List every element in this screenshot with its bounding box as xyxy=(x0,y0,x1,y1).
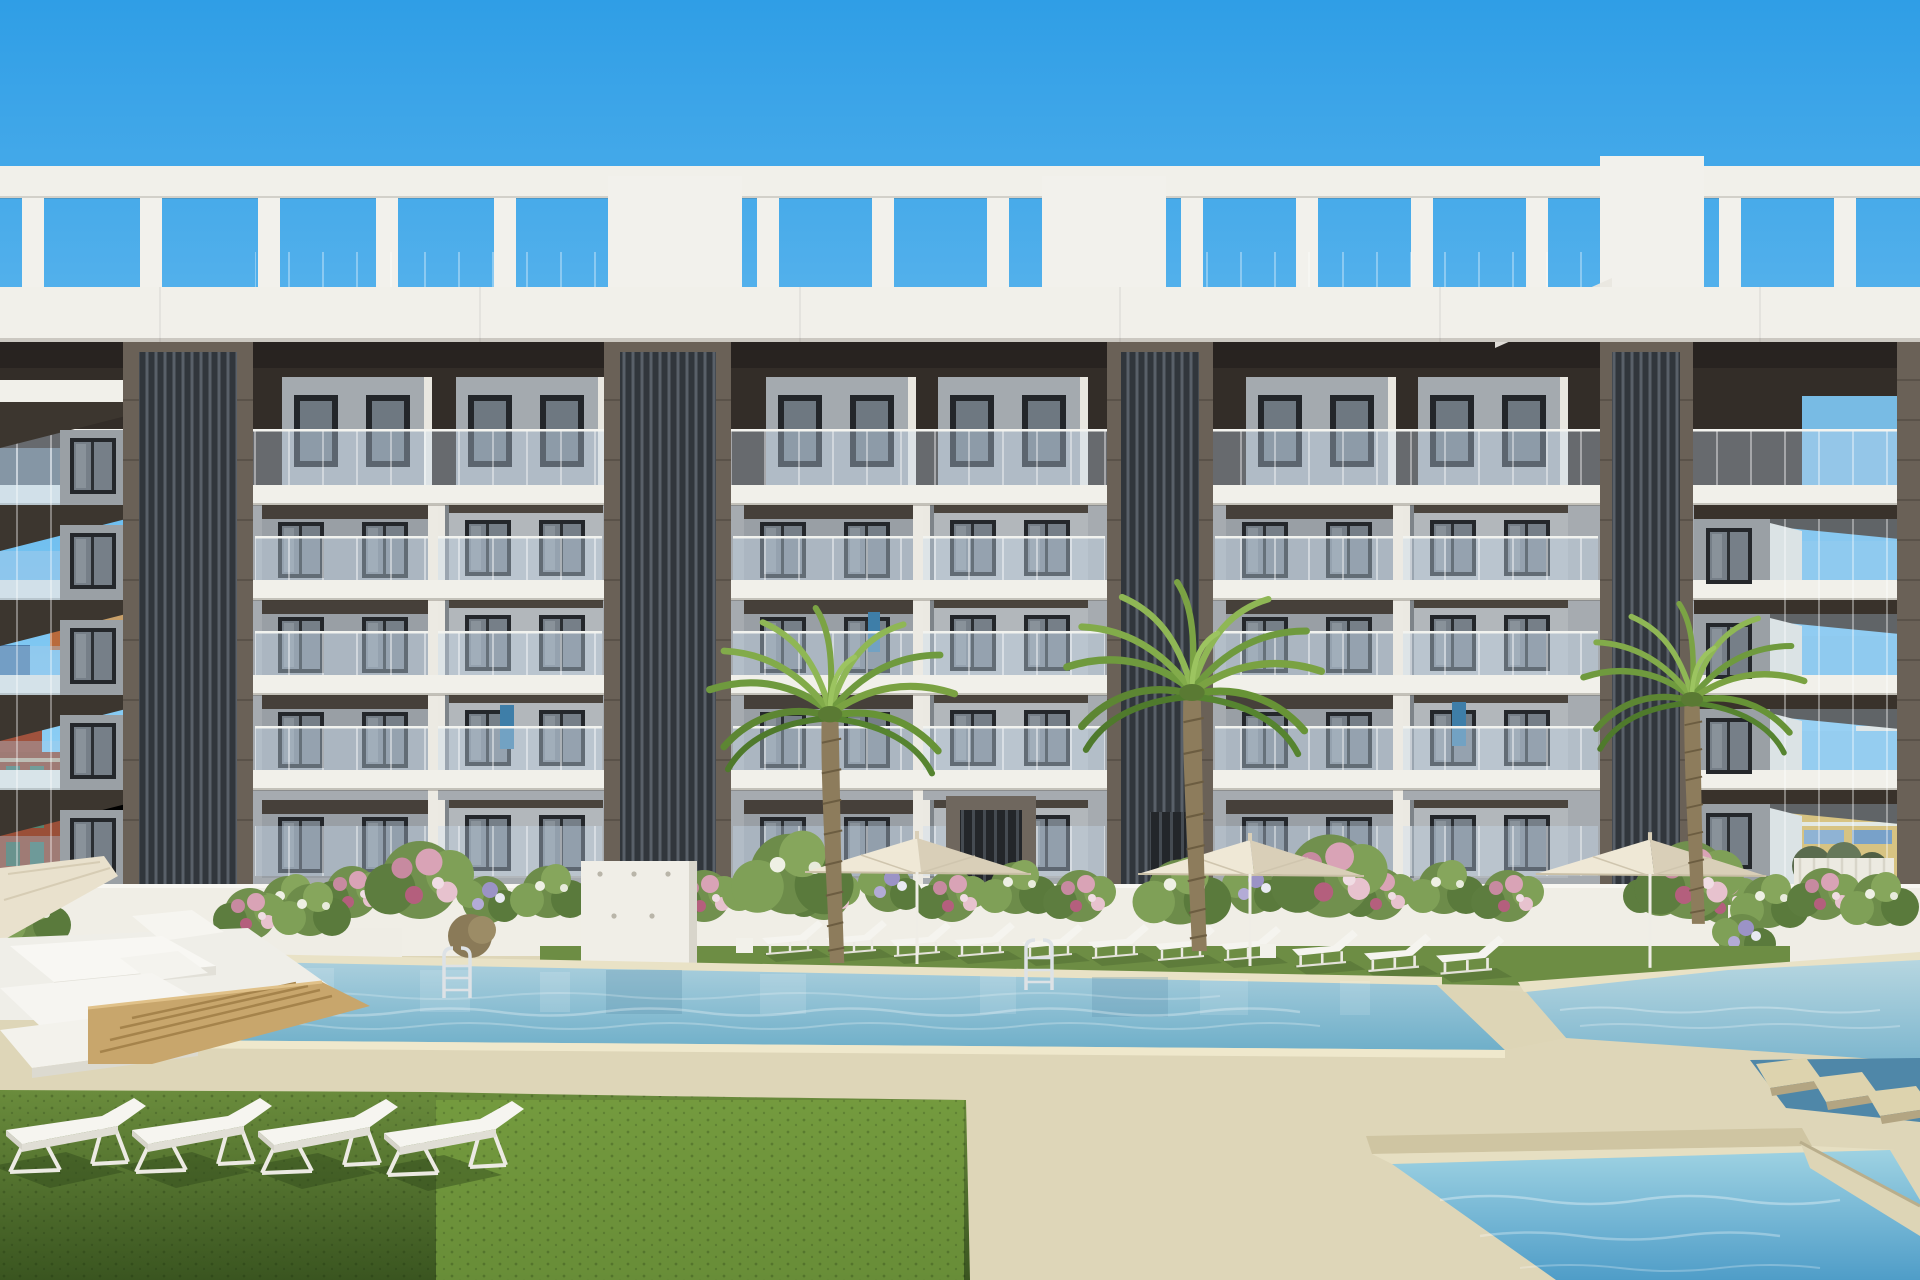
louvre-tower xyxy=(604,342,731,886)
louvre-tower xyxy=(123,342,253,886)
rendering-canvas xyxy=(0,0,1920,1280)
side-table xyxy=(1260,944,1276,958)
shower-panel xyxy=(581,861,697,967)
louvre-tower xyxy=(1600,342,1693,886)
right-end-pier xyxy=(1897,342,1920,956)
side-table xyxy=(736,938,753,953)
roof-stair-box xyxy=(1042,176,1166,287)
left-wing-glass xyxy=(0,448,60,886)
roof-stair-box xyxy=(608,176,742,287)
left-wing xyxy=(0,380,126,886)
roof-stair-box xyxy=(1600,156,1704,287)
